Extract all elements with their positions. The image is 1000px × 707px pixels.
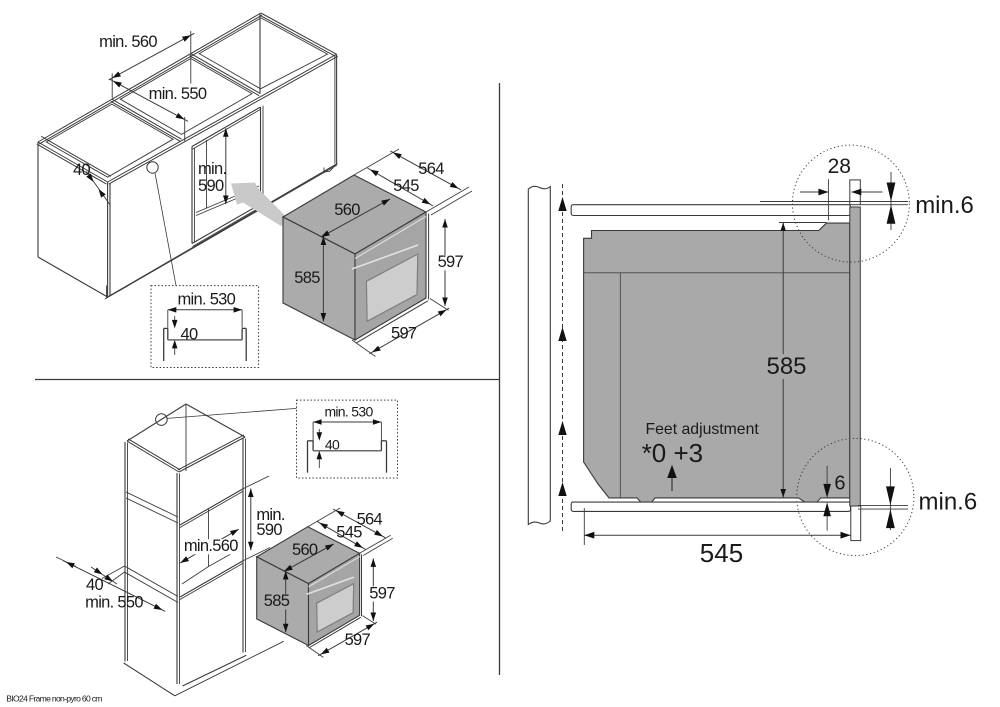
svg-text:560: 560 [334,201,360,219]
svg-text:28: 28 [828,155,851,178]
svg-text:40: 40 [181,326,198,344]
svg-text:min. 530: min. 530 [177,291,235,309]
svg-text:597: 597 [345,631,371,649]
svg-text:585: 585 [264,592,290,610]
svg-text:564: 564 [418,160,444,178]
svg-text:545: 545 [336,524,362,542]
svg-text:min. 560: min. 560 [99,33,157,51]
svg-text:min. 550: min. 550 [149,85,207,103]
svg-text:min. 530: min. 530 [324,404,373,420]
svg-text:min.6: min.6 [919,489,978,516]
svg-text:min. 550: min. 550 [85,594,143,612]
svg-text:597: 597 [438,253,464,271]
svg-text:545: 545 [700,538,743,568]
svg-text:6: 6 [834,473,845,495]
svg-text:min.: min. [198,160,226,178]
svg-text:Feet adjustment: Feet adjustment [646,421,760,438]
svg-text:min.560: min.560 [184,537,238,555]
svg-text:*0 +3: *0 +3 [642,438,703,468]
svg-text:585: 585 [766,353,806,380]
svg-text:BIO24 Frame non-pyro 60 cm: BIO24 Frame non-pyro 60 cm [6,693,102,703]
svg-text:585: 585 [294,269,320,287]
svg-text:560: 560 [292,541,318,559]
svg-text:597: 597 [369,584,395,602]
svg-text:min.6: min.6 [915,192,974,219]
svg-text:545: 545 [393,177,419,195]
svg-text:590: 590 [256,521,282,539]
svg-text:590: 590 [198,177,224,195]
svg-text:40: 40 [325,437,340,453]
svg-text:40: 40 [86,576,103,594]
svg-text:597: 597 [391,325,417,343]
